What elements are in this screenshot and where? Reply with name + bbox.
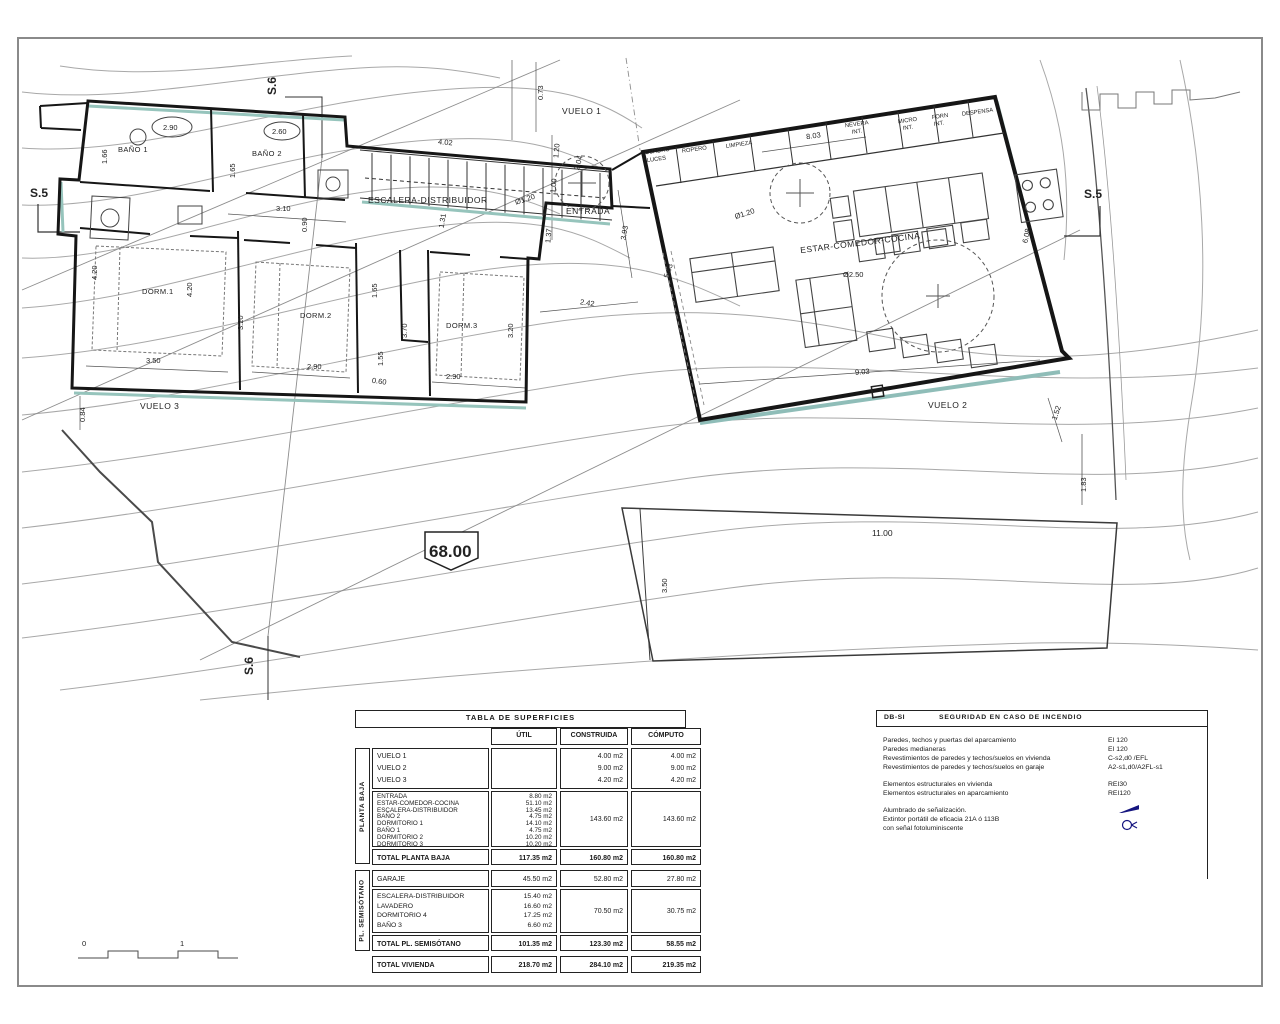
level-value: 68.00 (429, 542, 472, 561)
col-header-util: ÚTIL (491, 728, 557, 745)
row-label: VUELO 2 (377, 763, 488, 775)
cell-value: 4.20 m2 (561, 775, 623, 787)
title-label: SEGURIDAD EN CASO DE INCENDIO (939, 711, 1082, 725)
dimension: Ø1.20 (514, 192, 536, 207)
table-right-border (1207, 727, 1208, 879)
dimension: 3.50 (660, 578, 669, 593)
row-label: ESCALERA-DISTRIBUIDOR (377, 892, 488, 902)
garaje-label: GARAJE (372, 870, 489, 887)
cell-value: 4.20 m2 (632, 775, 696, 787)
fire-value: REI120 (1108, 790, 1203, 798)
dimension: 0.60 (371, 376, 387, 387)
area-label: VUELO 2 (928, 400, 967, 410)
row-label: LAVADERO (377, 902, 488, 912)
fire-table-title: DB-SI SEGURIDAD EN CASO DE INCENDIO (876, 710, 1208, 727)
row-label: VUELO 1 (377, 751, 488, 763)
dimension: 1.20 (551, 143, 561, 158)
pb-rooms-construida: 143.60 m2 (560, 791, 628, 847)
dimension: 1.31 (437, 213, 448, 229)
dimension: 0.73 (536, 85, 545, 100)
dimension: 3.20 (506, 323, 515, 338)
dimension: 1.52 (1050, 404, 1063, 421)
section-marker: S.5 (30, 186, 48, 200)
ps-total-construida: 123.30 m2 (560, 935, 628, 951)
closet-label: INT. (852, 128, 863, 135)
dimension: 6.08 (1020, 228, 1032, 244)
closet-label: DESPENSA (962, 107, 994, 117)
ps-rooms-construida: 70.50 m2 (560, 889, 628, 933)
fire-row: Elementos estructurales en aparcamiento (883, 790, 1103, 798)
cell-value: 4.00 m2 (561, 751, 623, 763)
plan-sheet: { "plan": { "labels": [ "S.5","S.5","S.6… (0, 0, 1280, 1024)
fire-value: REI30 (1108, 781, 1203, 789)
dimension: 1.66 (100, 149, 109, 164)
dimension: 9.03 (855, 367, 870, 377)
dimension: 1.65 (228, 163, 237, 178)
dimension: 2.42 (579, 297, 595, 308)
row-label: VUELO 3 (377, 775, 488, 787)
ps-total-util: 101.35 m2 (491, 935, 557, 951)
fire-row: Alumbrado de señalización. (883, 807, 1103, 815)
section-marker: S.6 (242, 657, 256, 675)
garaje-computo: 27.80 m2 (631, 870, 701, 887)
cell-value: 9.00 m2 (632, 763, 696, 775)
scale-tick: 0 (82, 939, 86, 948)
garaje-construida: 52.80 m2 (560, 870, 628, 887)
pb-total-util: 117.35 m2 (491, 849, 557, 865)
skylight-circles (770, 163, 994, 352)
fire-safety-table: DB-SI SEGURIDAD EN CASO DE INCENDIO Pare… (876, 710, 1208, 910)
closet-label: INT. (934, 120, 945, 127)
dimension: 4.20 (90, 265, 99, 280)
closet-label: LUCES (647, 155, 667, 164)
cell-value: 17.25 m2 (492, 911, 552, 921)
cell-value: 16.60 m2 (492, 902, 552, 912)
dimension: 2.90 (307, 362, 322, 371)
fire-value: EI 120 (1108, 737, 1203, 745)
dimension: 3.20 (236, 315, 245, 330)
fire-row: Extintor portátil de eficacia 21A ó 113B (883, 816, 1103, 824)
dimension: 1.83 (1079, 477, 1088, 492)
ps-room-util: 15.40 m2 16.60 m2 17.25 m2 6.60 m2 (491, 889, 557, 933)
cell-value: 4.00 m2 (632, 751, 696, 763)
ps-rooms-computo: 30.75 m2 (631, 889, 701, 933)
grand-total-label: TOTAL VIVIENDA (372, 956, 489, 973)
vuelos-computo: 4.00 m2 9.00 m2 4.20 m2 (631, 748, 701, 789)
dimension: 0.84 (78, 407, 87, 422)
scale-tick: 1 (180, 939, 184, 948)
bath-fixtures (90, 117, 348, 240)
fire-row: con señal fotoluminiscente (883, 825, 1103, 833)
cell-value: 6.60 m2 (492, 921, 552, 931)
cell-value: 10.20 m2 (492, 842, 552, 849)
section-marker: S.6 (265, 77, 279, 95)
area-label: VUELO 1 (562, 106, 601, 116)
dimension: 1.65 (370, 283, 379, 298)
row-label: BAÑO 3 (377, 921, 488, 931)
dimension: 4.20 (185, 282, 194, 297)
grand-total-util: 218.70 m2 (491, 956, 557, 973)
dimension: 2.90 (163, 123, 178, 132)
dimension: 2.60 (272, 127, 287, 136)
terrace-outline (622, 508, 1117, 661)
row-label: DORMITORIO 3 (377, 842, 488, 849)
dimension: 0.90 (300, 217, 309, 232)
room-label: DORM.3 (446, 321, 478, 330)
room-label: ESCALERA-DISTRIBUIDOR (368, 195, 488, 205)
vuelos-names: VUELO 1 VUELO 2 VUELO 3 (372, 748, 489, 789)
fire-row: Revestimientos de paredes y techos/suelo… (883, 755, 1103, 763)
room-label: DORM.1 (142, 287, 174, 296)
pb-room-names: ENTRADA ESTAR-COMEDOR-COCINA ESCALERA-DI… (372, 791, 489, 847)
dimension: 5.83 (662, 262, 675, 279)
col-header-computo: CÓMPUTO (631, 728, 701, 745)
pb-total-construida: 160.80 m2 (560, 849, 628, 865)
grand-total-computo: 219.35 m2 (631, 956, 701, 973)
dimension: 11.00 (872, 528, 893, 538)
pb-total-label: TOTAL PLANTA BAJA (372, 849, 489, 865)
closet-label: CUADRO (645, 147, 671, 157)
garaje-util: 45.50 m2 (491, 870, 557, 887)
dimension: 2.90 (446, 372, 461, 381)
code-label: DB-SI (884, 711, 905, 725)
dimension: 3.70 (400, 323, 409, 338)
scale-bar (78, 951, 238, 958)
fire-row: Paredes, techos y puertas del aparcamien… (883, 737, 1103, 745)
cell-value: 15.40 m2 (492, 892, 552, 902)
pb-total-computo: 160.80 m2 (631, 849, 701, 865)
col-header-construida: CONSTRUIDA (560, 728, 628, 745)
fire-value: A2-s1,d0/A2FL-s1 (1108, 764, 1203, 772)
extinguisher-icon (1121, 818, 1143, 832)
fire-row: Paredes medianeras (883, 746, 1103, 754)
ps-total-computo: 58.55 m2 (631, 935, 701, 951)
dimension: 1.00 (548, 178, 558, 193)
ps-room-names: ESCALERA-DISTRIBUIDOR LAVADERO DORMITORI… (372, 889, 489, 933)
closet-label: FORN (932, 113, 949, 121)
surfaces-table: TABLA DE SUPERFICIES ÚTIL CONSTRUIDA CÓM… (355, 710, 701, 974)
closet-label: INT. (903, 125, 914, 132)
row-label: DORMITORIO 4 (377, 911, 488, 921)
sofa (690, 237, 857, 361)
vuelos-construida: 4.00 m2 9.00 m2 4.20 m2 (560, 748, 628, 789)
area-label: VUELO 3 (140, 401, 179, 411)
dimension: 3.93 (619, 225, 630, 241)
dimension: 2.04 (572, 155, 584, 171)
section-label-semisotano: PL. SEMISÓTANO (355, 870, 370, 951)
dimension: 3.10 (276, 204, 291, 213)
dimension: 1.37 (543, 228, 553, 243)
fence-line (1082, 90, 1240, 110)
room-label: ENTRADA (566, 206, 610, 216)
dimension: Ø2.50 (843, 270, 863, 279)
pb-rooms-computo: 143.60 m2 (631, 791, 701, 847)
room-label: DORM.2 (300, 311, 332, 320)
room-label: BAÑO 1 (118, 145, 148, 154)
section-label-planta-baja: PLANTA BAJA (355, 748, 370, 864)
fire-row: Elementos estructurales en vivienda (883, 781, 1103, 789)
fire-row: Revestimientos de paredes y techos/suelo… (883, 764, 1103, 772)
ps-total-label: TOTAL PL. SEMISÓTANO (372, 935, 489, 951)
emergency-light-icon (1119, 805, 1139, 813)
surfaces-table-title: TABLA DE SUPERFICIES (355, 710, 686, 728)
dimension: 1.55 (376, 351, 385, 366)
room-label: BAÑO 2 (252, 149, 282, 158)
pb-room-util: 8.80 m2 51.10 m2 13.45 m2 4.75 m2 14.10 … (491, 791, 557, 847)
dimension: 4.02 (438, 137, 453, 147)
cell-value: 9.00 m2 (561, 763, 623, 775)
dimension: Ø1.20 (733, 206, 755, 221)
grand-total-construida: 284.10 m2 (560, 956, 628, 973)
fire-value: C-s2,d0 /EFL (1108, 755, 1203, 763)
closet-label: LIMPIEZA (726, 140, 753, 150)
closet-label: MICRO (898, 117, 918, 126)
vuelos-util-empty (491, 748, 557, 789)
dimension: 8.03 (806, 130, 822, 141)
section-marker: S.5 (1084, 187, 1102, 201)
dimension: 3.50 (146, 356, 161, 365)
fire-value: EI 120 (1108, 746, 1203, 754)
room-label: ESTAR-COMEDOR-COCINA (800, 230, 921, 255)
